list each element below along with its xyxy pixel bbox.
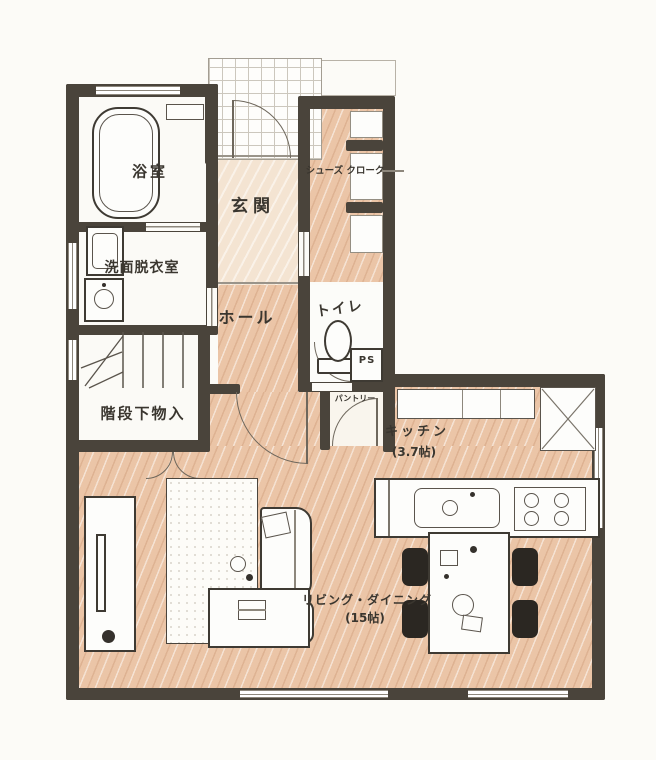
closet-partition (346, 140, 383, 151)
stove-burner (554, 511, 569, 526)
door-leaf (306, 392, 308, 464)
sliding-door (207, 288, 217, 326)
cabinet-divider (462, 390, 463, 418)
sofa-back-line (294, 510, 296, 596)
laptop-hinge-line (238, 609, 266, 611)
window (68, 340, 77, 380)
entrance-step-line (218, 282, 298, 284)
window (468, 690, 568, 698)
floor-item (246, 574, 253, 581)
tableware (440, 550, 458, 566)
tv (96, 534, 106, 612)
wall (383, 374, 605, 387)
room-label-pipe-space: PS (359, 356, 376, 366)
kitchen-cabinet (397, 389, 535, 419)
counter-end-panel (388, 480, 390, 536)
wall (320, 386, 330, 450)
tableware (444, 574, 449, 579)
staircase (79, 332, 198, 388)
room-label-shoes-closet: シューズ クローク (306, 166, 385, 176)
room-label-under-stairs: 階段下物入 (100, 407, 185, 422)
closet-partition (346, 202, 383, 213)
room-label-washroom: 洗面脱衣室 (105, 261, 180, 275)
bath-folding-door (146, 223, 200, 231)
room-label-hall: ホール (218, 310, 275, 326)
vanity-basin (94, 289, 114, 309)
wall (66, 84, 79, 700)
wall (300, 96, 395, 109)
room-floor-hall (218, 285, 298, 392)
room-size-kitchen: (3.7帖) (392, 446, 436, 458)
floor-plan-page: { "plan": { "kind": "floor-plan-sketch",… (0, 0, 656, 760)
sink-drain (442, 500, 458, 516)
floor-cushion (230, 556, 246, 572)
tableware (452, 594, 474, 616)
room-label-kitchen: キッチン (385, 426, 449, 439)
tv-board-item (102, 630, 115, 643)
window (96, 86, 180, 95)
wall (383, 96, 395, 387)
room-label-pantry: パントリー (335, 395, 375, 403)
room-label-bath: 浴室 (132, 165, 168, 180)
dining-chair (512, 548, 538, 586)
room-label-living-dining: リビング・ダイニング (302, 594, 432, 606)
stove (514, 487, 586, 531)
stove-burner (554, 493, 569, 508)
cabinet-divider (500, 390, 501, 418)
room-floor-entrance (218, 158, 298, 285)
window (240, 690, 388, 698)
refrigerator-x-mark (540, 387, 596, 451)
door-leaf (376, 398, 378, 446)
bath-counter (166, 104, 204, 120)
room-size-living-dining: (15帖) (345, 612, 385, 624)
wall (206, 384, 240, 394)
wall (66, 440, 210, 452)
shoe-shelf (350, 111, 383, 138)
tv-board (84, 496, 136, 652)
wall (383, 386, 395, 452)
tableware (470, 546, 477, 553)
stove-burner (524, 511, 539, 526)
vanity-faucet (102, 283, 106, 287)
shoe-shelf (350, 215, 383, 253)
door-opening (312, 383, 352, 391)
room-label-entrance: 玄関 (231, 199, 275, 216)
dining-chair (512, 600, 538, 638)
sliding-door (299, 232, 309, 276)
sink-faucet (470, 492, 475, 497)
door-leaf (232, 100, 234, 158)
stove-burner (524, 493, 539, 508)
shoe-shelf (350, 153, 383, 200)
window (68, 243, 77, 309)
tableware (461, 615, 483, 633)
dining-chair (402, 548, 428, 586)
toilet-bowl (324, 320, 352, 362)
